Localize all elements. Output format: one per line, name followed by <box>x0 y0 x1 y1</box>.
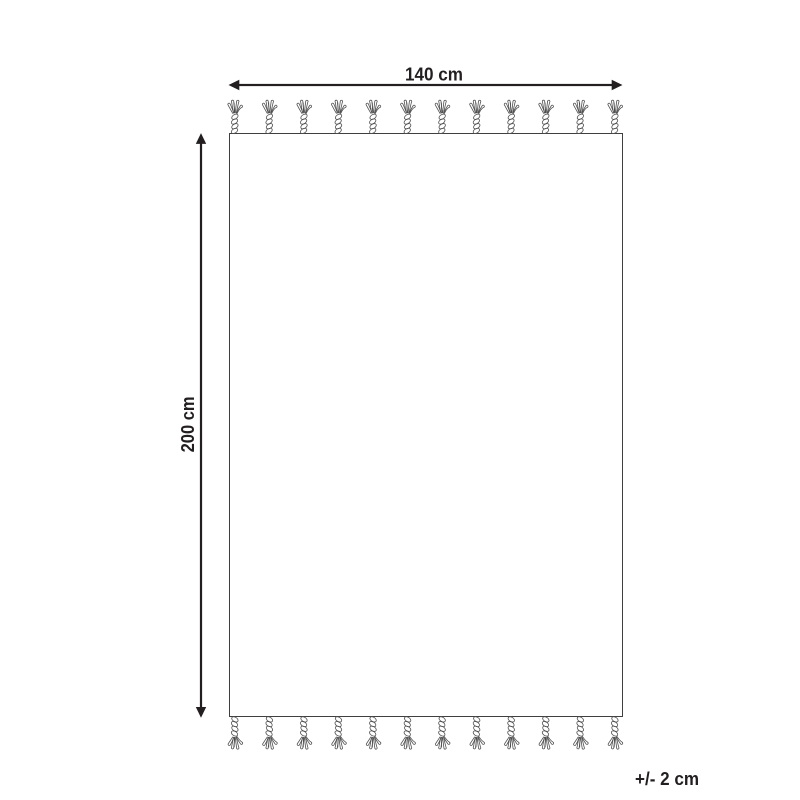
svg-text:200 cm: 200 cm <box>177 396 198 452</box>
svg-text:140 cm: 140 cm <box>405 64 463 85</box>
svg-text:+/- 2 cm: +/- 2 cm <box>635 768 699 789</box>
